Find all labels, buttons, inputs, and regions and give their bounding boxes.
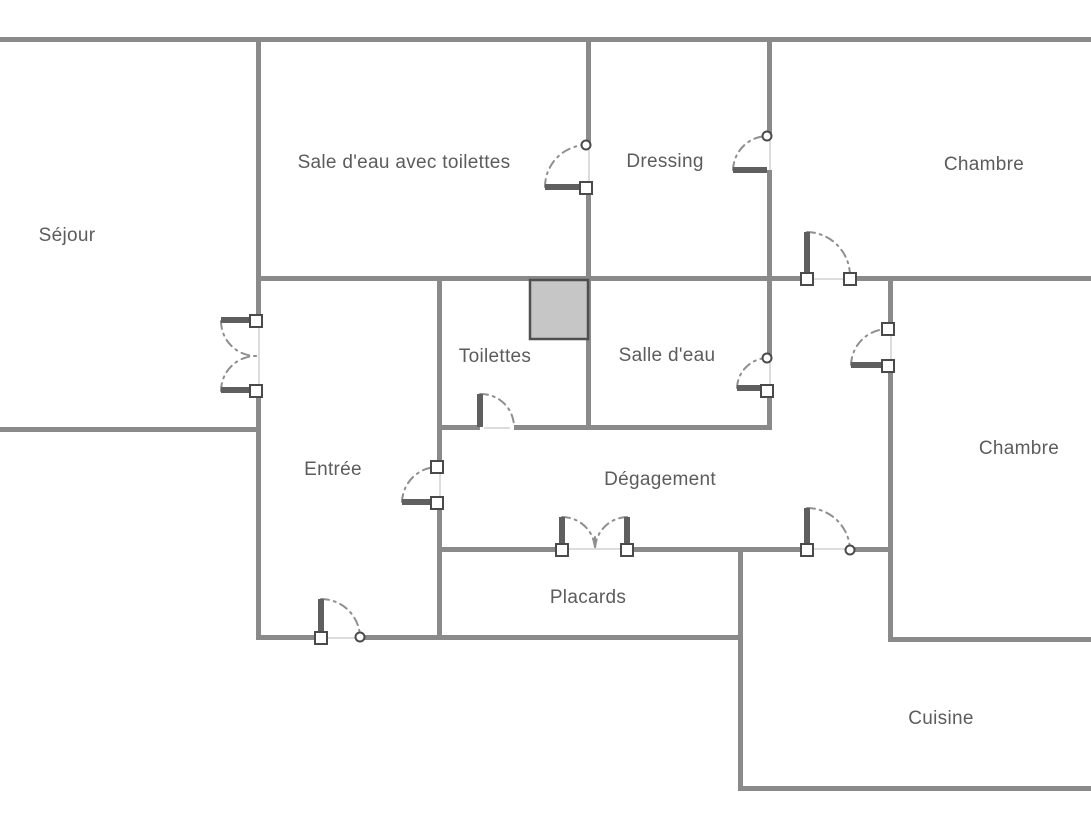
wall-segment: [437, 501, 442, 640]
wall-segment: [437, 547, 562, 552]
door-swing-arc: [545, 145, 586, 187]
room-label-dressing: Dressing: [626, 151, 703, 173]
door-leaf: [804, 508, 810, 549]
door-opening: [769, 140, 771, 170]
door-hinge: [801, 273, 813, 285]
door-hinge: [621, 544, 633, 556]
wall-segment: [850, 547, 892, 552]
door-swing-arc: [737, 358, 767, 388]
wall-segment: [628, 547, 807, 552]
door-swing-arc: [733, 136, 767, 170]
door-hinge: [844, 273, 856, 285]
door-opening: [812, 548, 845, 550]
door-opening: [568, 548, 623, 550]
door-opening: [812, 278, 845, 280]
wall-segment: [0, 427, 259, 432]
door-opening: [258, 327, 260, 385]
door-swing-arc: [807, 232, 850, 276]
door-leaf: [733, 167, 767, 173]
door-hinge: [315, 632, 327, 644]
door-leaf: [477, 394, 483, 427]
wall-segment: [0, 37, 1091, 42]
door-hinge: [763, 354, 772, 363]
door-swing-arc: [480, 394, 514, 427]
wall-segment: [767, 37, 772, 137]
door-hinge: [580, 182, 592, 194]
door-hinge: [763, 132, 772, 141]
wall-segment: [256, 385, 261, 640]
room-label-salle-deau: Salle d'eau: [619, 345, 716, 367]
door-hinge: [556, 544, 568, 556]
wall-segment: [437, 278, 442, 467]
duct-shaft: [530, 280, 588, 339]
wall-segment: [888, 364, 893, 640]
wall-segment: [767, 170, 772, 360]
room-label-chambre-droite: Chambre: [979, 438, 1059, 460]
door-hinge: [882, 360, 894, 372]
wall-segment: [256, 37, 261, 327]
door-hinge: [761, 385, 773, 397]
wall-segment: [360, 635, 740, 640]
wall-segment: [586, 37, 591, 147]
door-opening: [484, 427, 510, 429]
door-hinge: [250, 315, 262, 327]
door-hinge: [431, 461, 443, 473]
door-opening: [326, 637, 355, 639]
floor-plan: SéjourSale d'eau avec toilettesDressingC…: [0, 0, 1091, 818]
door-hinge: [356, 633, 365, 642]
wall-segment: [850, 276, 1091, 281]
door-leaf: [221, 317, 253, 323]
door-hinge: [431, 497, 443, 509]
door-hinge: [250, 385, 262, 397]
door-opening: [588, 150, 590, 186]
door-leaf: [221, 387, 253, 393]
wall-segment: [256, 635, 321, 640]
wall-segment: [738, 786, 1091, 791]
door-hinge: [801, 544, 813, 556]
room-label-sale-deau-avec-toilettes: Sale d'eau avec toilettes: [298, 152, 511, 174]
room-label-entree: Entrée: [304, 459, 362, 481]
room-label-cuisine: Cuisine: [908, 708, 973, 730]
room-label-sejour: Séjour: [39, 225, 96, 247]
door-hinge: [846, 546, 855, 555]
room-label-degagement: Dégagement: [604, 469, 716, 491]
door-hinge: [582, 141, 591, 150]
room-label-toilettes: Toilettes: [459, 346, 531, 368]
wall-segment: [738, 549, 743, 791]
wall-segment: [888, 637, 1091, 642]
room-label-chambre-haut: Chambre: [944, 154, 1024, 176]
wall-segment: [437, 425, 480, 430]
floorplan-canvas: [0, 0, 1091, 818]
room-label-placards: Placards: [550, 587, 626, 609]
wall-segment: [514, 425, 770, 430]
door-leaf: [804, 232, 810, 277]
door-hinge: [882, 323, 894, 335]
